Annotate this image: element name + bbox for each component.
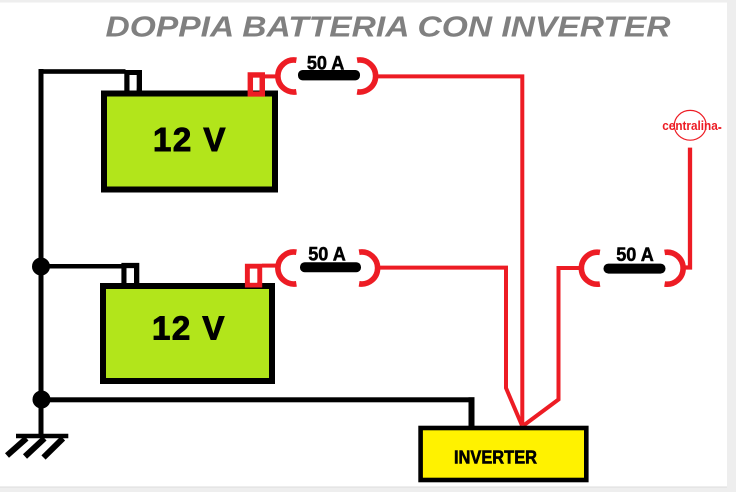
svg-text:INVERTER: INVERTER (454, 448, 537, 468)
svg-text:50 A: 50 A (307, 54, 345, 75)
svg-text:12 V: 12 V (152, 310, 226, 347)
svg-text:50 A: 50 A (308, 245, 346, 266)
svg-text:12 V: 12 V (153, 121, 227, 158)
svg-text:DOPPIA BATTERIA CON INVERTER: DOPPIA BATTERIA CON INVERTER (106, 12, 671, 44)
svg-text:centralina: centralina (662, 118, 718, 133)
svg-text:50 A: 50 A (616, 245, 654, 266)
